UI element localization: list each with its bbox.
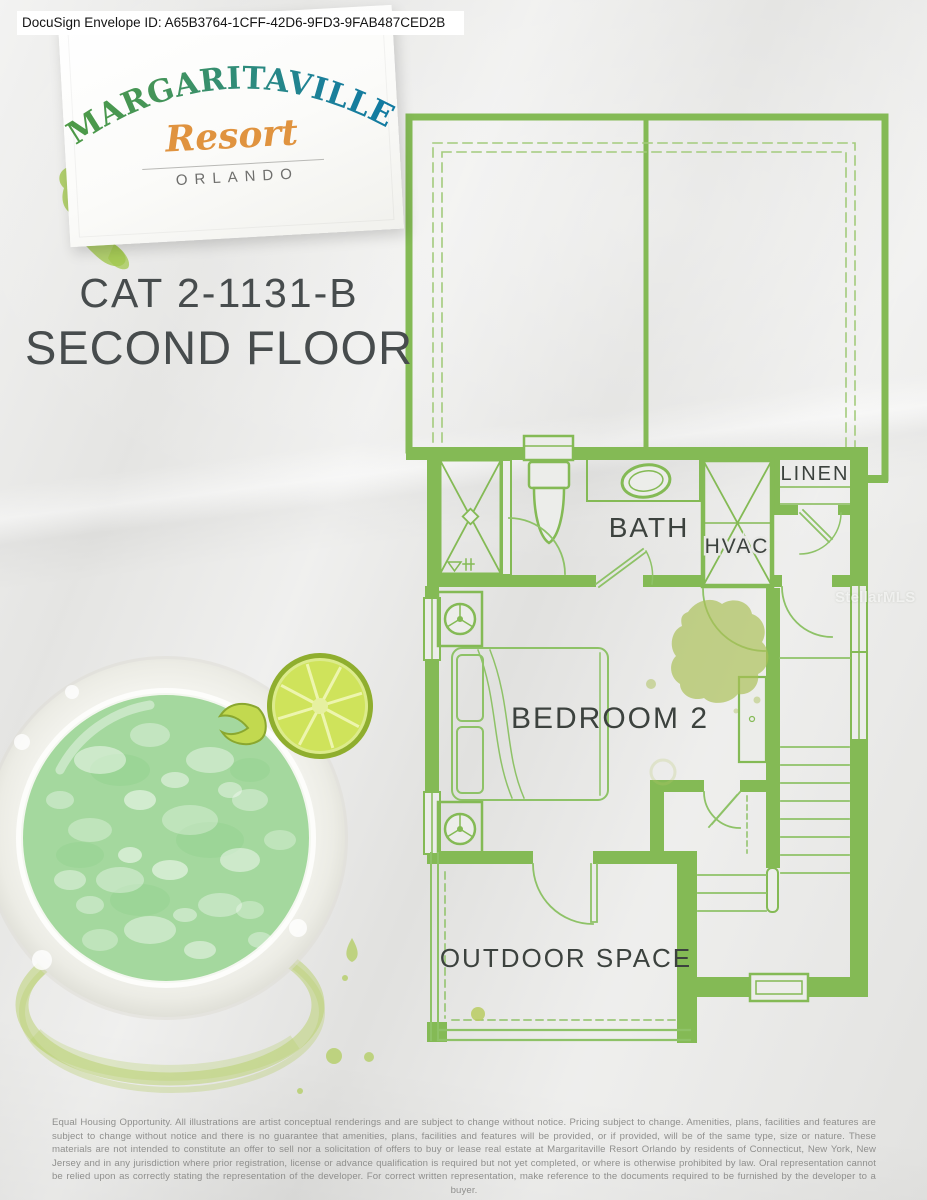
stair-rail (767, 868, 778, 912)
flyer-page: LINEN BATH HVAC BEDROOM 2 OUTDOOR SPACE (0, 0, 927, 1200)
stair-treads-upper (781, 747, 849, 873)
margarita (0, 634, 392, 1094)
unit-code-title: CAT 2-1131-B (0, 270, 438, 317)
stair-window (851, 585, 867, 740)
disclaimer-text: Equal Housing Opportunity. All illustrat… (52, 1116, 876, 1197)
mls-watermark: StellarMLS (835, 589, 916, 606)
shower-drain-icon (448, 562, 461, 571)
floor-plan: LINEN BATH HVAC BEDROOM 2 OUTDOOR SPACE (406, 117, 888, 1043)
slush (23, 695, 309, 981)
logo-script-text: Resort (163, 111, 299, 160)
docusign-envelope-bar: DocuSign Envelope ID: A65B3764-1CFF-42D6… (17, 11, 464, 35)
droplets (297, 938, 374, 1094)
window-above-toilet (524, 436, 573, 460)
outdoor-door (533, 864, 597, 924)
nightstand-bottom (438, 802, 482, 856)
linen-door (800, 510, 841, 554)
vanity-sink (587, 460, 700, 501)
plan-titles: CAT 2-1131-B SECOND FLOOR (0, 270, 438, 375)
hvac-closet (703, 460, 772, 586)
napkin: MARGARITAVILLE Resort ORLANDO (58, 5, 404, 247)
stair-treads-lower (698, 875, 766, 911)
shower-valve-icon (463, 559, 474, 570)
pillow (457, 727, 483, 793)
linen-label: LINEN (781, 463, 850, 485)
shower (440, 460, 501, 574)
hvac-label: HVAC (705, 535, 770, 558)
sink-icon (620, 462, 672, 500)
nightstand-top (438, 592, 482, 646)
vestibule-door (704, 792, 747, 853)
bedroom-label: BEDROOM 2 (511, 702, 709, 735)
outdoor-label: OUTDOOR SPACE (440, 943, 692, 973)
pillow (457, 655, 483, 721)
hall-door-arc (782, 587, 832, 637)
toilet-icon (529, 462, 569, 543)
roof-outline (409, 117, 888, 483)
floor-title: SECOND FLOOR (0, 320, 438, 375)
linen-closet (780, 487, 852, 554)
bath-label: BATH (609, 512, 690, 543)
stair-bottom-window (750, 974, 808, 1001)
stain-dot (471, 1007, 485, 1021)
